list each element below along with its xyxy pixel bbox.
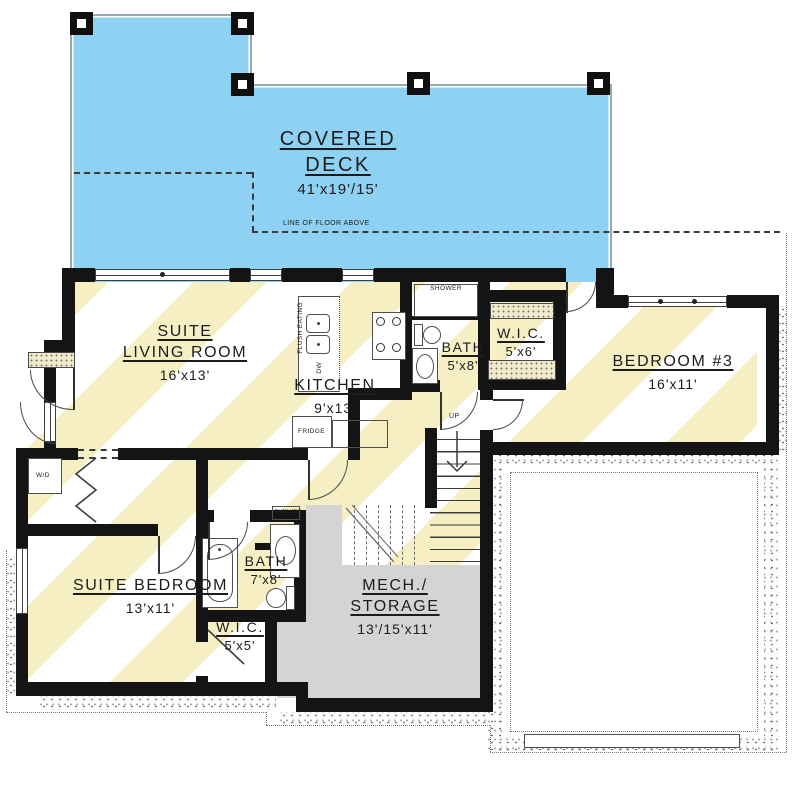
floor-plan: COVERED DECK 41'x19'/15' LINE OF FLOOR A… xyxy=(0,0,798,800)
dishwasher-label: DW xyxy=(316,362,323,374)
room-label-bath-upper: BATH 5'x8' xyxy=(435,338,491,375)
room-dims: 7'x8' xyxy=(234,572,298,589)
deck-label: COVERED DECK 41'x19'/15' xyxy=(253,126,423,200)
room-name: MECH./ xyxy=(315,576,475,597)
room-label-wic-lower: W.I.C. 5'x5' xyxy=(210,618,270,655)
room-dims: 13'x11' xyxy=(38,599,263,617)
room-label-bedroom3: BEDROOM #3 16'x11' xyxy=(588,352,758,393)
room-name: BEDROOM #3 xyxy=(588,352,758,373)
room-name: SUITE BEDROOM xyxy=(38,576,263,597)
room-dims: 5'x6' xyxy=(488,344,554,361)
room-dims: 9'x13' xyxy=(293,399,377,417)
plan-lines-svg xyxy=(0,0,798,800)
shelves-label: SHELVES xyxy=(274,509,302,515)
bifold-door xyxy=(76,458,96,522)
room-label-mech: MECH./ STORAGE 13'/15'x11' xyxy=(315,576,475,638)
deck-name-line1: COVERED xyxy=(253,126,423,152)
room-name: STORAGE xyxy=(315,597,475,618)
understair-slope-line xyxy=(352,505,398,557)
stairs-up-label: UP xyxy=(449,413,460,420)
room-name: SUITE xyxy=(90,322,280,343)
room-name: W.I.C. xyxy=(210,618,270,636)
room-name: LIVING ROOM xyxy=(90,343,280,364)
shower-label: SHOWER xyxy=(414,285,478,292)
room-label-living: SUITE LIVING ROOM 16'x13' xyxy=(90,322,280,384)
room-name: KITCHEN xyxy=(293,376,377,397)
room-label-suite-bedroom: SUITE BEDROOM 13'x11' xyxy=(38,576,263,617)
floor-above-note: LINE OF FLOOR ABOVE xyxy=(283,220,370,227)
room-label-bath-lower: BATH 7'x8' xyxy=(234,552,298,589)
room-dims: 16'x11' xyxy=(588,375,758,393)
room-label-kitchen: KITCHEN 9'x13' xyxy=(293,376,377,417)
flush-eating-label: FLUSH EATING xyxy=(297,302,304,354)
room-label-wic-upper: W.I.C. 5'x6' xyxy=(488,324,554,361)
room-name: BATH xyxy=(435,338,491,356)
room-dims: 5'x8' xyxy=(435,358,491,375)
room-name: BATH xyxy=(234,552,298,570)
deck-dims: 41'x19'/15' xyxy=(253,180,423,200)
fridge-label: FRIDGE xyxy=(298,428,325,435)
room-name: W.I.C. xyxy=(488,324,554,342)
understair-slope-line xyxy=(346,508,394,562)
room-dims: 16'x13' xyxy=(90,366,280,384)
deck-name-line2: DECK xyxy=(253,152,423,178)
room-dims: 13'/15'x11' xyxy=(315,620,475,638)
washer-dryer-label: W/D xyxy=(36,472,50,479)
room-dims: 5'x5' xyxy=(210,638,270,655)
